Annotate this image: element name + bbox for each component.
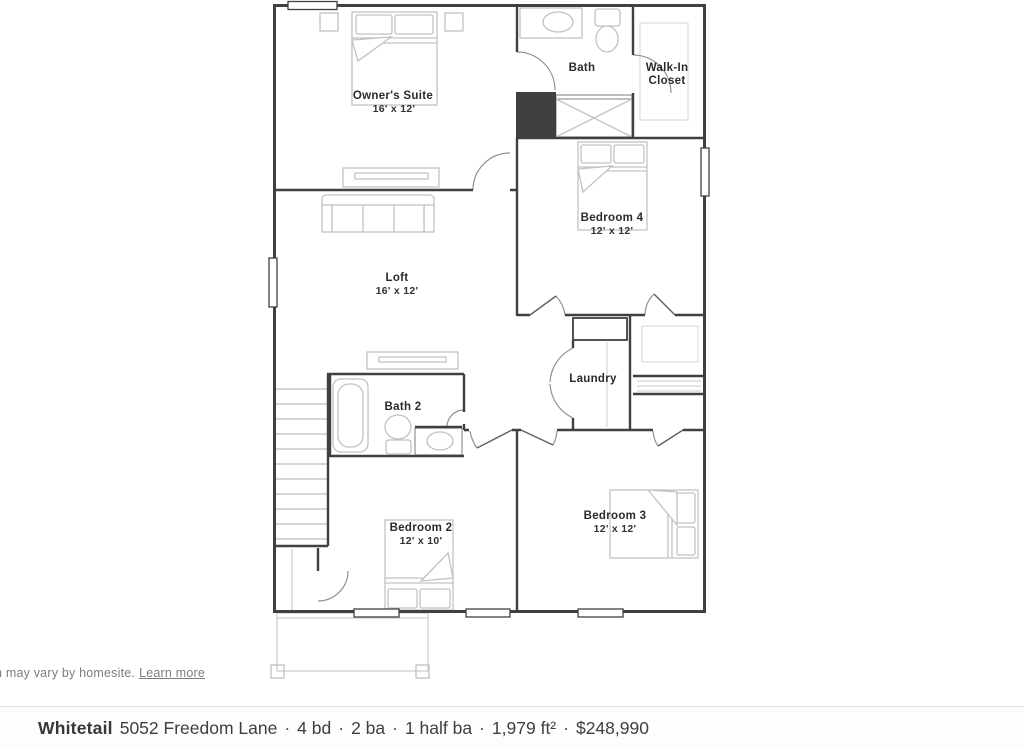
- separator-dot: ·: [338, 718, 344, 739]
- disclaimer-fragment: n: [0, 666, 2, 680]
- listing-half-baths: 1 half ba: [405, 718, 472, 739]
- room-dims-owners-suite: 16' x 12': [373, 103, 416, 115]
- staircase: [274, 389, 327, 611]
- room-dims-loft: 16' x 12': [376, 285, 419, 297]
- listing-address: 5052 Freedom Lane: [120, 718, 278, 739]
- separator-dot: ·: [479, 718, 485, 739]
- shower: [556, 95, 632, 137]
- room-label-bedroom4: Bedroom 4: [581, 212, 644, 224]
- room-label-walk-in-closet-line1: Walk-In: [646, 62, 689, 74]
- room-dims-bedroom3: 12' x 12': [594, 523, 637, 535]
- porch-outline: [271, 613, 429, 678]
- room-label-bath2: Bath 2: [385, 401, 422, 413]
- separator-dot: ·: [392, 718, 398, 739]
- listing-summary-bar: Whitetail 5052 Freedom Lane · 4 bd · 2 b…: [0, 706, 1024, 749]
- floor-plan-image: Owner's Suite 16' x 12' Bath Walk-In Clo…: [0, 0, 1024, 690]
- real-estate-floor-plan-page: Owner's Suite 16' x 12' Bath Walk-In Clo…: [0, 0, 1024, 749]
- listing-price: $248,990: [576, 718, 649, 739]
- room-label-loft: Loft: [386, 272, 409, 284]
- listing-baths: 2 ba: [351, 718, 385, 739]
- disclaimer-body: may vary by homesite.: [6, 666, 135, 680]
- room-label-bedroom2: Bedroom 2: [390, 522, 453, 534]
- room-label-laundry: Laundry: [569, 373, 617, 385]
- learn-more-link[interactable]: Learn more: [139, 666, 205, 680]
- listing-area: 1,979 ft²: [492, 718, 556, 739]
- room-label-bath: Bath: [569, 62, 596, 74]
- room-dims-bedroom2: 12' x 10': [400, 535, 443, 547]
- room-label-walk-in-closet-line2: Closet: [649, 75, 686, 87]
- plan-name: Whitetail: [38, 718, 113, 739]
- room-label-owners-suite: Owner's Suite: [353, 90, 433, 102]
- listing-beds: 4 bd: [297, 718, 331, 739]
- separator-dot: ·: [563, 718, 569, 739]
- separator-dot: ·: [284, 718, 290, 739]
- bath2-fixtures: [333, 379, 462, 455]
- disclaimer-text: n may vary by homesite.Learn more: [0, 666, 205, 680]
- room-dims-bedroom4: 12' x 12': [591, 225, 634, 237]
- room-label-bedroom3: Bedroom 3: [584, 510, 647, 522]
